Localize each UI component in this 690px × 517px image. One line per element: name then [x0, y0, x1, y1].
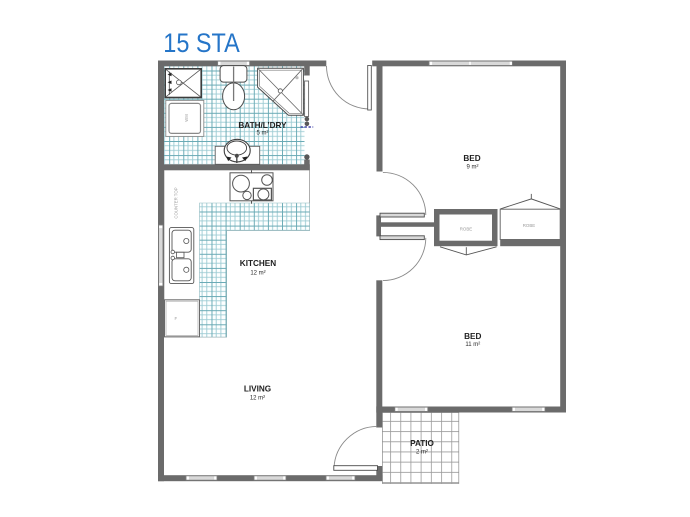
svg-text:KITCHEN: KITCHEN [240, 259, 276, 268]
svg-text:BED: BED [463, 154, 480, 163]
svg-text:F: F [175, 316, 178, 321]
svg-text:BED: BED [464, 332, 481, 341]
svg-text:BATH/L’DRY: BATH/L’DRY [238, 121, 287, 130]
svg-text:2 m²: 2 m² [416, 450, 428, 456]
svg-text:9 m²: 9 m² [467, 164, 479, 170]
svg-text:12 m²: 12 m² [250, 396, 265, 402]
svg-text:COUNTER TOP: COUNTER TOP [174, 187, 179, 218]
svg-text:LIVING: LIVING [244, 385, 271, 394]
svg-text:15 STA: 15 STA [163, 28, 240, 58]
svg-text:12 m²: 12 m² [250, 271, 265, 277]
svg-text:PATIO: PATIO [410, 439, 434, 448]
svg-text:5 m²: 5 m² [257, 130, 269, 136]
svg-text:ROBE: ROBE [523, 223, 536, 228]
svg-text:ROBE: ROBE [460, 227, 473, 232]
svg-text:WM: WM [184, 114, 189, 122]
svg-text:11 m²: 11 m² [465, 342, 480, 348]
